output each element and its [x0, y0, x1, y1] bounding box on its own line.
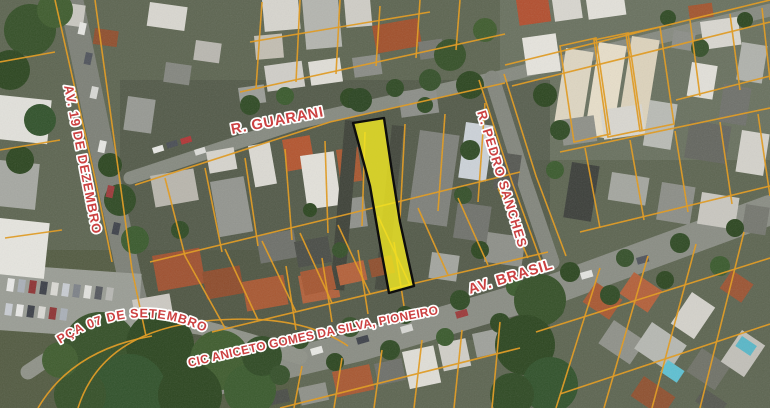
- map-viewport[interactable]: AV. 19 DE DEZEMBRO R. GUARANI R. PEDRO S…: [0, 0, 770, 408]
- aerial-map-canvas[interactable]: AV. 19 DE DEZEMBRO R. GUARANI R. PEDRO S…: [0, 0, 770, 408]
